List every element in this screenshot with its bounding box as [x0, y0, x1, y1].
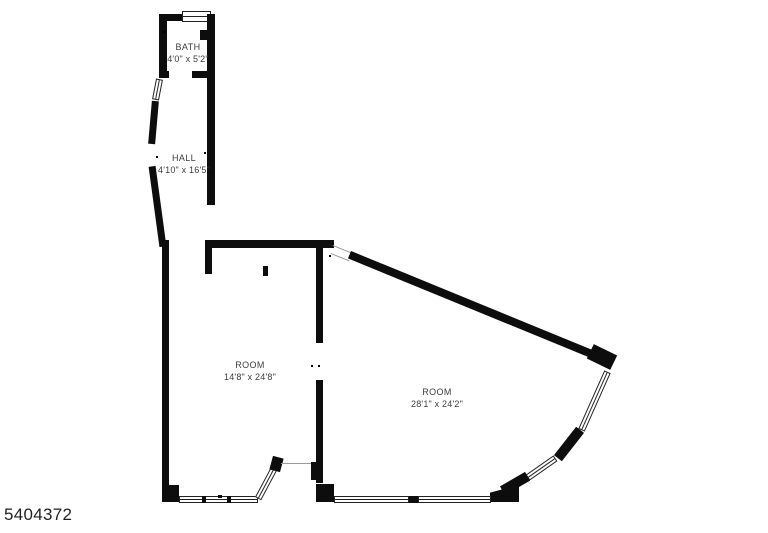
wall: [162, 485, 179, 502]
window-mullion: [202, 496, 206, 503]
room-dimensions: 28'1" x 24'2": [367, 398, 507, 410]
wall: [316, 248, 323, 343]
room-dimensions: 4'10" x 16'5": [114, 164, 254, 176]
room-label-hall: HALL 4'10" x 16'5": [114, 152, 254, 176]
wall-diagonal: [554, 427, 584, 462]
wall: [316, 484, 334, 502]
door-opening: [281, 463, 311, 464]
floor-plan: BATH 4'0" x 5'2" HALL 4'10" x 16'5" ROOM…: [0, 0, 768, 533]
room-name: ROOM: [180, 359, 320, 371]
wall: [148, 101, 159, 144]
wall-stub: [205, 248, 212, 274]
wall: [205, 240, 334, 248]
door-opening: [333, 245, 352, 253]
door-mark: [329, 255, 331, 257]
window: [526, 455, 558, 480]
window-mullion: [409, 496, 418, 503]
window: [334, 496, 409, 503]
wall: [192, 71, 215, 78]
room-label-room2: ROOM 28'1" x 24'2": [367, 386, 507, 410]
door-mark: [163, 31, 165, 33]
room-name: ROOM: [367, 386, 507, 398]
wall: [316, 380, 323, 483]
door-opening: [331, 253, 350, 261]
wall-stub: [263, 266, 268, 276]
window-mullion: [227, 496, 231, 503]
listing-id: 5404372: [4, 505, 72, 525]
wall: [159, 71, 169, 78]
wall-diagonal: [348, 251, 597, 359]
room-label-room1: ROOM 14'8" x 24'8": [180, 359, 320, 383]
room-label-bath: BATH 4'0" x 5'2": [118, 41, 258, 65]
room-dimensions: 14'8" x 24'8": [180, 371, 320, 383]
window: [578, 370, 610, 431]
window: [418, 496, 491, 503]
wall: [149, 166, 167, 247]
wall: [269, 456, 283, 472]
wall-corner: [587, 344, 617, 370]
window: [152, 79, 163, 101]
room-name: HALL: [114, 152, 254, 164]
wall: [311, 462, 316, 480]
wall: [200, 30, 208, 40]
room-dimensions: 4'0" x 5'2": [118, 53, 258, 65]
wall: [162, 240, 169, 502]
room-name: BATH: [118, 41, 258, 53]
wall: [207, 78, 215, 205]
window-mullion: [218, 495, 222, 498]
